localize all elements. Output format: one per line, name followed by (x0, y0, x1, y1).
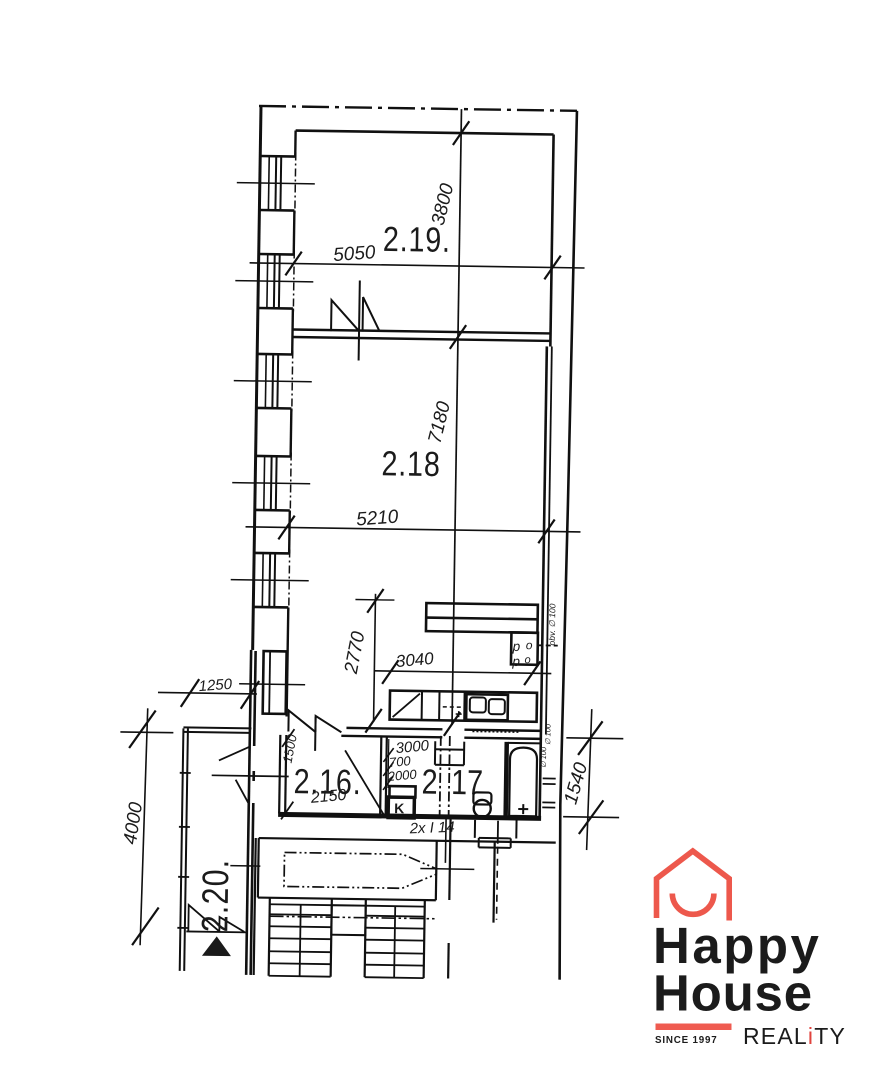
svg-text:o: o (526, 638, 533, 652)
svg-text:REALiTY: REALiTY (743, 1023, 846, 1049)
svg-text:o: o (524, 654, 530, 666)
svg-text:5050: 5050 (332, 242, 376, 266)
svg-text:2.20.: 2.20. (195, 858, 238, 932)
svg-text:∅ 100: ∅ 100 (539, 746, 548, 768)
svg-text:2.18: 2.18 (381, 443, 441, 483)
svg-text:2: 2 (421, 762, 438, 802)
svg-text:p: p (512, 639, 521, 654)
svg-text:SINCE 1997: SINCE 1997 (655, 1035, 717, 1046)
svg-text:K: K (394, 800, 404, 816)
svg-text:5210: 5210 (355, 506, 399, 530)
svg-text:House: House (653, 965, 813, 1022)
svg-text:∅ 100: ∅ 100 (543, 723, 552, 745)
svg-text:2000: 2000 (386, 766, 418, 784)
svg-text:3040: 3040 (395, 649, 435, 671)
svg-text:17: 17 (451, 762, 484, 802)
svg-text:1250: 1250 (198, 676, 233, 695)
svg-text:obv. ∅ 100: obv. ∅ 100 (547, 603, 558, 645)
svg-text:2x I 14: 2x I 14 (408, 819, 455, 838)
svg-text:p: p (511, 654, 520, 669)
svg-text:2150: 2150 (309, 787, 347, 807)
